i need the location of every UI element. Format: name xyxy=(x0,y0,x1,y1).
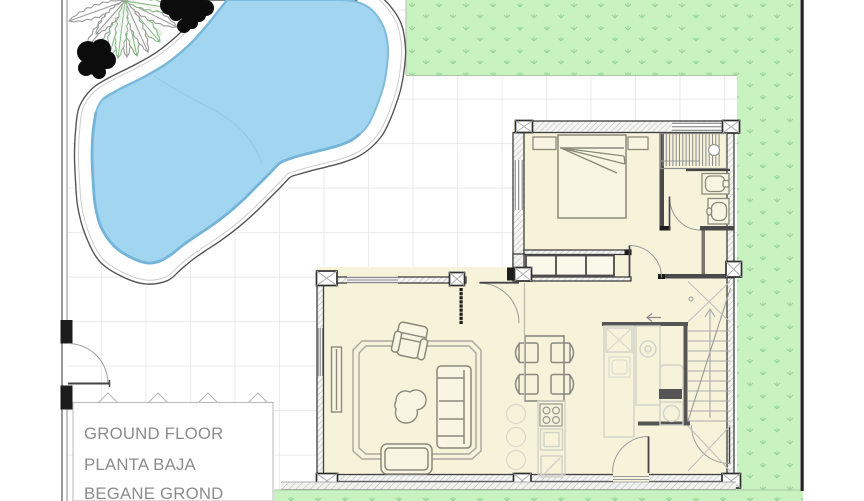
svg-text:PLANTA BAJA: PLANTA BAJA xyxy=(84,455,197,474)
svg-text:GROUND FLOOR: GROUND FLOOR xyxy=(84,424,223,443)
svg-text:BEGANE GROND: BEGANE GROND xyxy=(84,484,223,501)
